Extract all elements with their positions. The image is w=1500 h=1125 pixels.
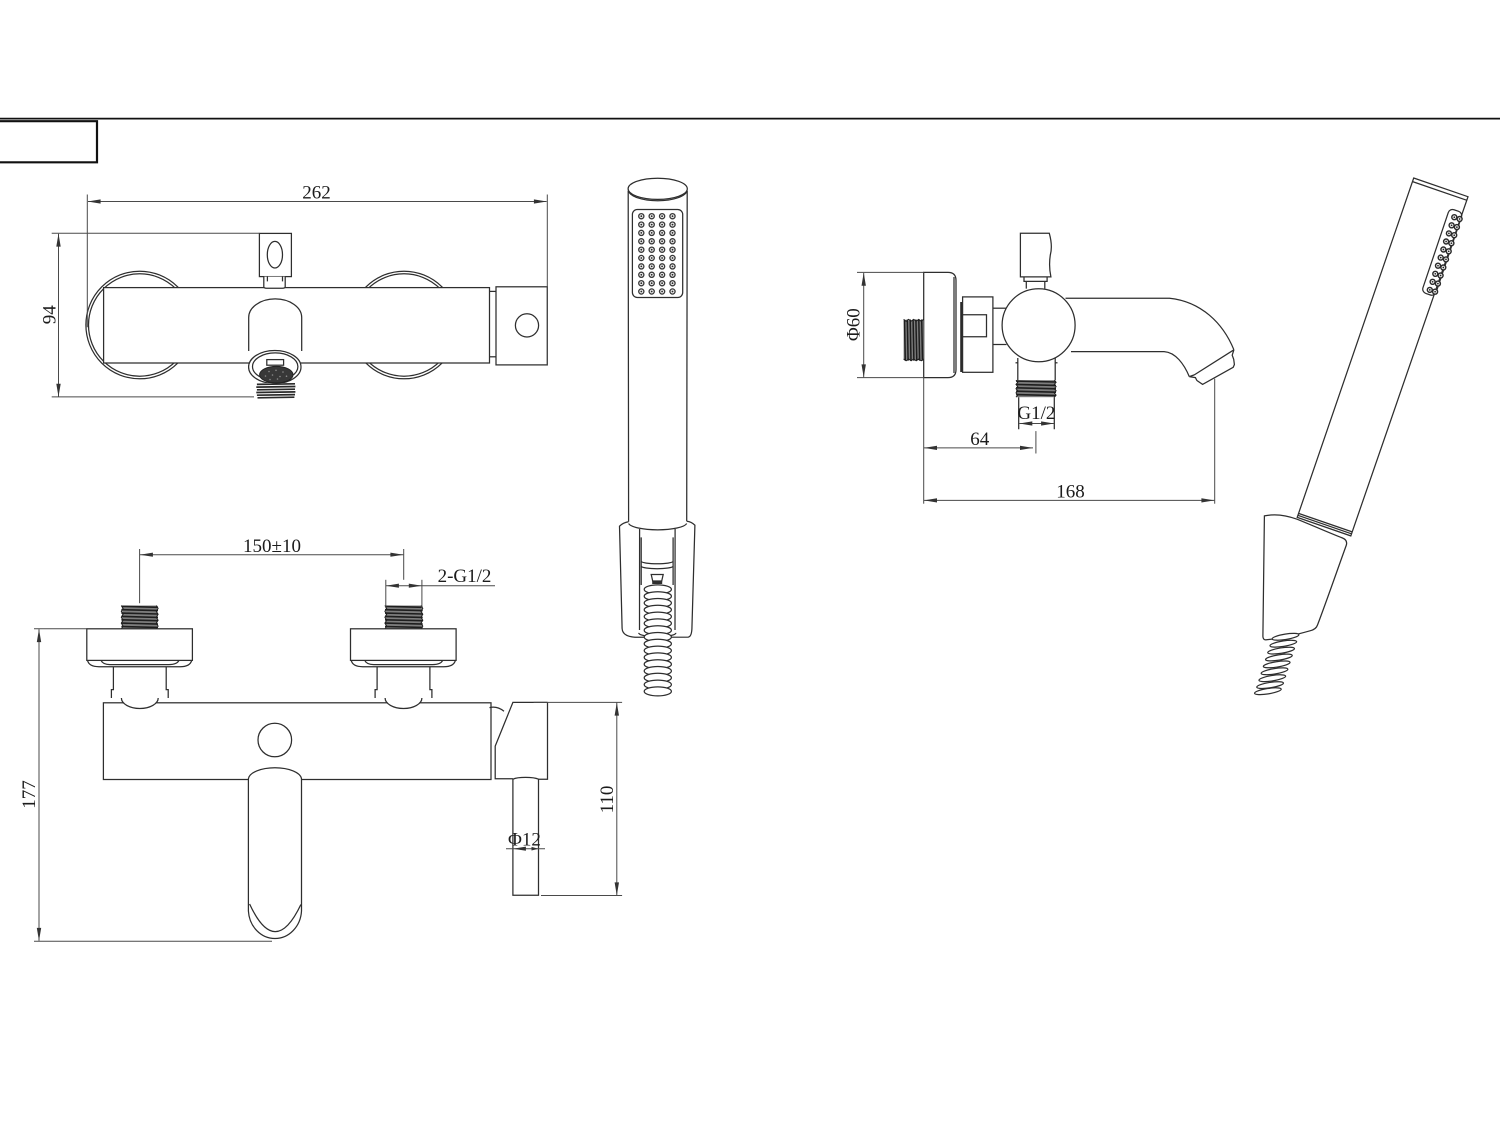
svg-text:177: 177 — [19, 780, 40, 809]
svg-text:Φ60: Φ60 — [843, 308, 864, 341]
svg-text:262: 262 — [302, 183, 331, 204]
svg-text:110: 110 — [597, 786, 618, 814]
svg-text:Φ12: Φ12 — [508, 830, 541, 851]
svg-text:168: 168 — [1056, 481, 1085, 502]
svg-text:64: 64 — [970, 429, 990, 450]
svg-text:G1/2: G1/2 — [1017, 403, 1055, 424]
svg-text:2-G1/2: 2-G1/2 — [438, 566, 492, 587]
svg-text:150±10: 150±10 — [243, 536, 301, 557]
svg-text:94: 94 — [40, 305, 61, 325]
